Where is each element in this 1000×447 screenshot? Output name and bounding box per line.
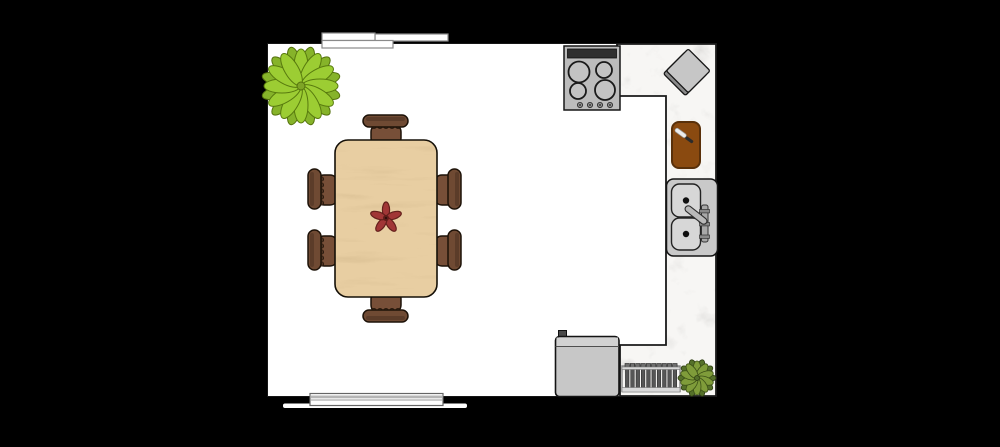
window-frame-bar: [311, 396, 442, 399]
chair-backrest: [308, 230, 321, 270]
drain-icon: [683, 231, 689, 237]
fridge-top-band: [557, 338, 619, 347]
sink[interactable]: [667, 179, 718, 256]
stove[interactable]: [564, 46, 620, 110]
chair-backrest-shade: [310, 233, 314, 267]
refrigerator[interactable]: [556, 331, 620, 397]
chair-backrest: [448, 230, 461, 270]
stove-back-panel: [568, 49, 617, 58]
burner-icon: [569, 62, 590, 83]
chair-backrest-shade: [310, 172, 314, 206]
chair-backrest-shade: [455, 233, 459, 267]
rack-bottom-rail: [622, 388, 680, 393]
plant-large-leaves: [261, 46, 342, 127]
chair-backrest: [308, 169, 321, 209]
chair-backrest-shade: [455, 172, 459, 206]
cutting-board[interactable]: [672, 122, 700, 168]
chair-backrest: [448, 169, 461, 209]
window-pane: [322, 33, 375, 41]
faucet-handle: [700, 210, 710, 213]
plant-large[interactable]: [261, 46, 342, 127]
floorplan-canvas: [0, 0, 1000, 447]
drain-icon: [683, 197, 689, 203]
flower-center-dot: [385, 217, 387, 219]
dining-table[interactable]: [335, 140, 437, 297]
window-pane: [310, 394, 443, 406]
chair-backrest-shade: [366, 316, 405, 320]
burner-icon: [570, 83, 586, 99]
floorplan-drawing: [0, 0, 1000, 447]
burner-icon: [596, 62, 612, 78]
window-bottom[interactable]: [283, 394, 467, 409]
chair-left-upper[interactable]: [308, 169, 338, 209]
burner-icon: [595, 80, 615, 100]
rack-top-rail: [622, 367, 680, 370]
chair-left-lower[interactable]: [308, 230, 338, 270]
faucet-handle: [700, 235, 710, 238]
window-pane: [322, 41, 393, 49]
chair-backrest-shade: [366, 117, 405, 121]
